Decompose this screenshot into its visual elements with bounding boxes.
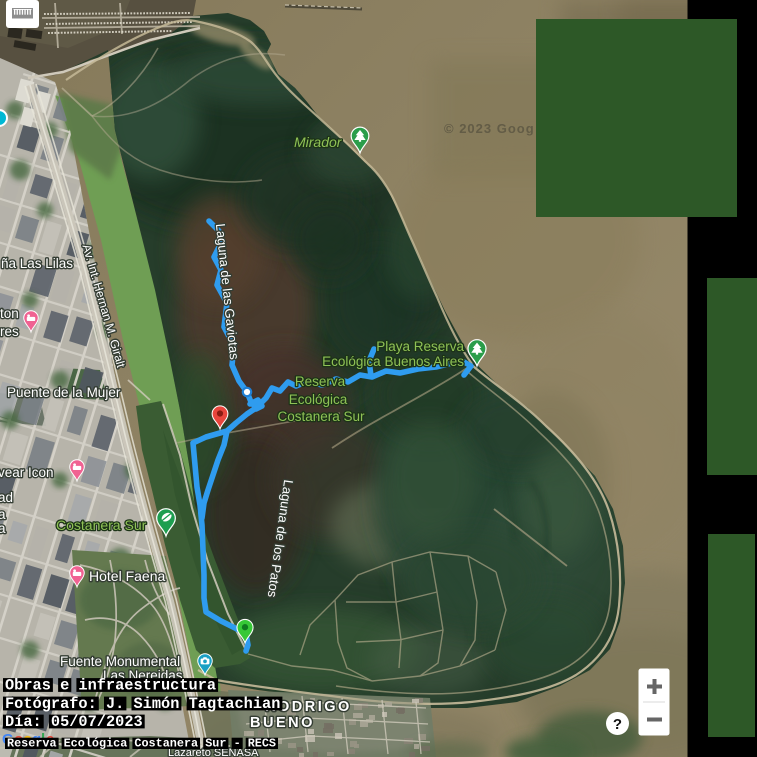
svg-text:?: ?	[613, 716, 622, 733]
svg-text:05/07/2023: 05/07/2023	[51, 713, 143, 731]
svg-text:Fotógrafo:: Fotógrafo:	[5, 695, 97, 713]
svg-text:Fuente Monumental: Fuente Monumental	[60, 654, 180, 669]
svg-text:Playa Reserva: Playa Reserva	[376, 339, 464, 354]
svg-text:Costanera: Costanera	[134, 737, 198, 751]
svg-text:BUENO: BUENO	[250, 715, 315, 731]
svg-text:ton: ton	[0, 306, 19, 321]
svg-text:ña Las Lilas: ña Las Lilas	[1, 256, 73, 271]
svg-text:ad: ad	[0, 490, 13, 505]
svg-text:Puente de la Mujer: Puente de la Mujer	[7, 385, 121, 400]
svg-text:a: a	[0, 507, 6, 522]
svg-text:Ecológica: Ecológica	[289, 392, 348, 407]
svg-text:e: e	[60, 677, 69, 695]
svg-text:Tagtachian: Tagtachian	[189, 695, 281, 713]
svg-text:Sur: Sur	[205, 737, 226, 751]
svg-text:infraestructura: infraestructura	[78, 677, 216, 695]
svg-text:Mirador: Mirador	[294, 134, 343, 150]
svg-text:© 2023 Goog: © 2023 Goog	[444, 121, 535, 136]
svg-text:-: -	[234, 737, 241, 751]
svg-text:J.: J.	[106, 695, 124, 713]
svg-text:Simón: Simón	[134, 695, 180, 713]
svg-text:Ecológica: Ecológica	[64, 737, 128, 751]
svg-text:Costanera Sur: Costanera Sur	[56, 517, 147, 533]
svg-text:Día:: Día:	[5, 713, 42, 731]
svg-text:Costanera Sur: Costanera Sur	[277, 409, 365, 424]
svg-text:res: res	[0, 324, 19, 339]
svg-text:Ecológica Buenos Aires: Ecológica Buenos Aires	[322, 354, 464, 369]
svg-text:Reserva: Reserva	[295, 374, 346, 389]
svg-text:Hotel Faena: Hotel Faena	[89, 568, 165, 584]
svg-text:Reserva: Reserva	[7, 737, 57, 751]
svg-text:vear Icon: vear Icon	[0, 465, 54, 480]
svg-text:RECS: RECS	[248, 737, 276, 751]
svg-text:a: a	[0, 521, 6, 536]
svg-text:Obras: Obras	[5, 677, 51, 695]
